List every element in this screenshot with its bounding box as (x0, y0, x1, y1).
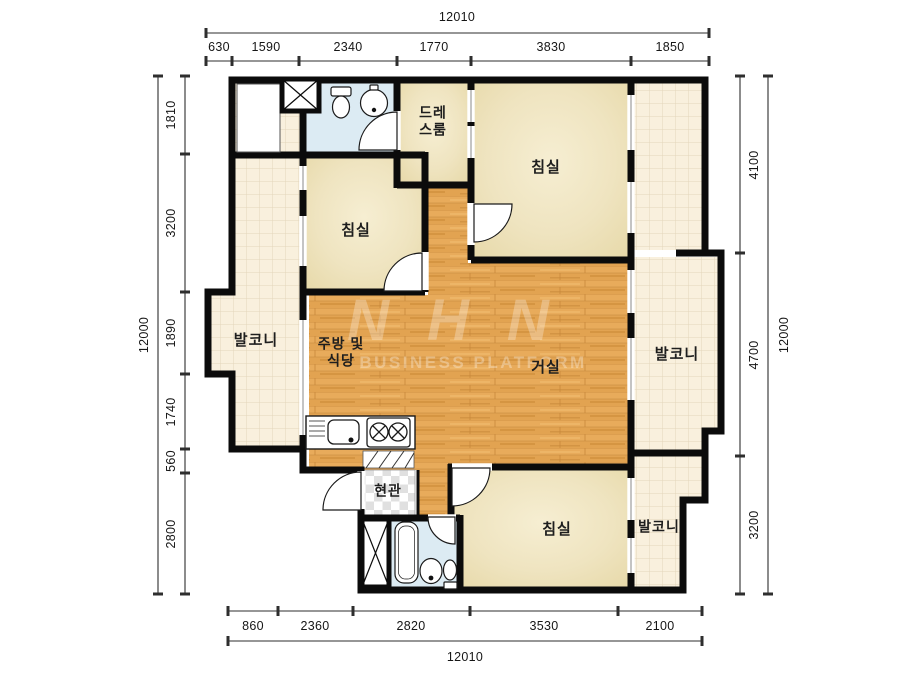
dim-bottom-seg-1: 2360 (300, 619, 329, 633)
label-dressroom: 드레 스룸 (419, 104, 447, 137)
dim-bottom-seg-0: 860 (242, 619, 264, 633)
dim-bottom-seg-3: 3530 (529, 619, 558, 633)
label-kitchen: 주방 및 식당 (318, 335, 365, 368)
dim-top-seg-0: 630 (208, 40, 230, 54)
dim-left-seg-5: 2800 (164, 519, 178, 548)
dim-top-seg-2: 2340 (333, 40, 362, 54)
dim-right-seg-1: 4700 (747, 340, 761, 369)
dim-right-seg-2: 3200 (747, 510, 761, 539)
label-entrance: 현관 (374, 483, 402, 500)
dim-left-total: 12000 (137, 317, 151, 353)
dim-right-seg-0: 4100 (747, 150, 761, 179)
label-bedroom-top-right: 침실 (531, 159, 561, 177)
duct-shaft-bottom (362, 519, 389, 587)
stove (367, 418, 410, 447)
dim-top-seg-3: 1770 (419, 40, 448, 54)
dim-left-seg-4: 560 (164, 450, 178, 472)
dim-right-total: 12000 (777, 317, 791, 353)
watermark-logo: NHN (347, 288, 587, 353)
stairwell (237, 84, 280, 152)
dim-top-seg-5: 1850 (655, 40, 684, 54)
dim-top-seg-1: 1590 (251, 40, 280, 54)
floor-plan-page: NHN BUSINESS PLATFORM (0, 0, 923, 676)
label-balcony-right: 발코니 (655, 346, 699, 364)
label-balcony-left: 발코니 (234, 332, 278, 350)
dim-top-seg-4: 3830 (536, 40, 565, 54)
label-living-room: 거실 (531, 359, 561, 377)
dim-left-seg-2: 1890 (164, 318, 178, 347)
dim-left-seg-3: 1740 (164, 397, 178, 426)
dim-bottom-seg-2: 2820 (396, 619, 425, 633)
dim-bottom-seg-4: 2100 (645, 619, 674, 633)
sink-drain (349, 438, 354, 443)
dim-left-seg-1: 3200 (164, 208, 178, 237)
dim-left-seg-0: 1810 (164, 100, 178, 129)
label-balcony-bottom: 발코니 (638, 519, 680, 536)
dim-top-total: 12010 (439, 10, 475, 24)
entrance-step-hatch (363, 451, 414, 468)
label-bedroom-bottom: 침실 (542, 521, 572, 539)
elevator-shaft-top (282, 79, 319, 111)
kitchen-sink (328, 420, 359, 444)
label-bedroom-top-left: 침실 (341, 222, 371, 240)
kitchen-counter (306, 416, 415, 449)
dim-bottom-total: 12010 (447, 650, 483, 664)
toilet (444, 560, 457, 580)
